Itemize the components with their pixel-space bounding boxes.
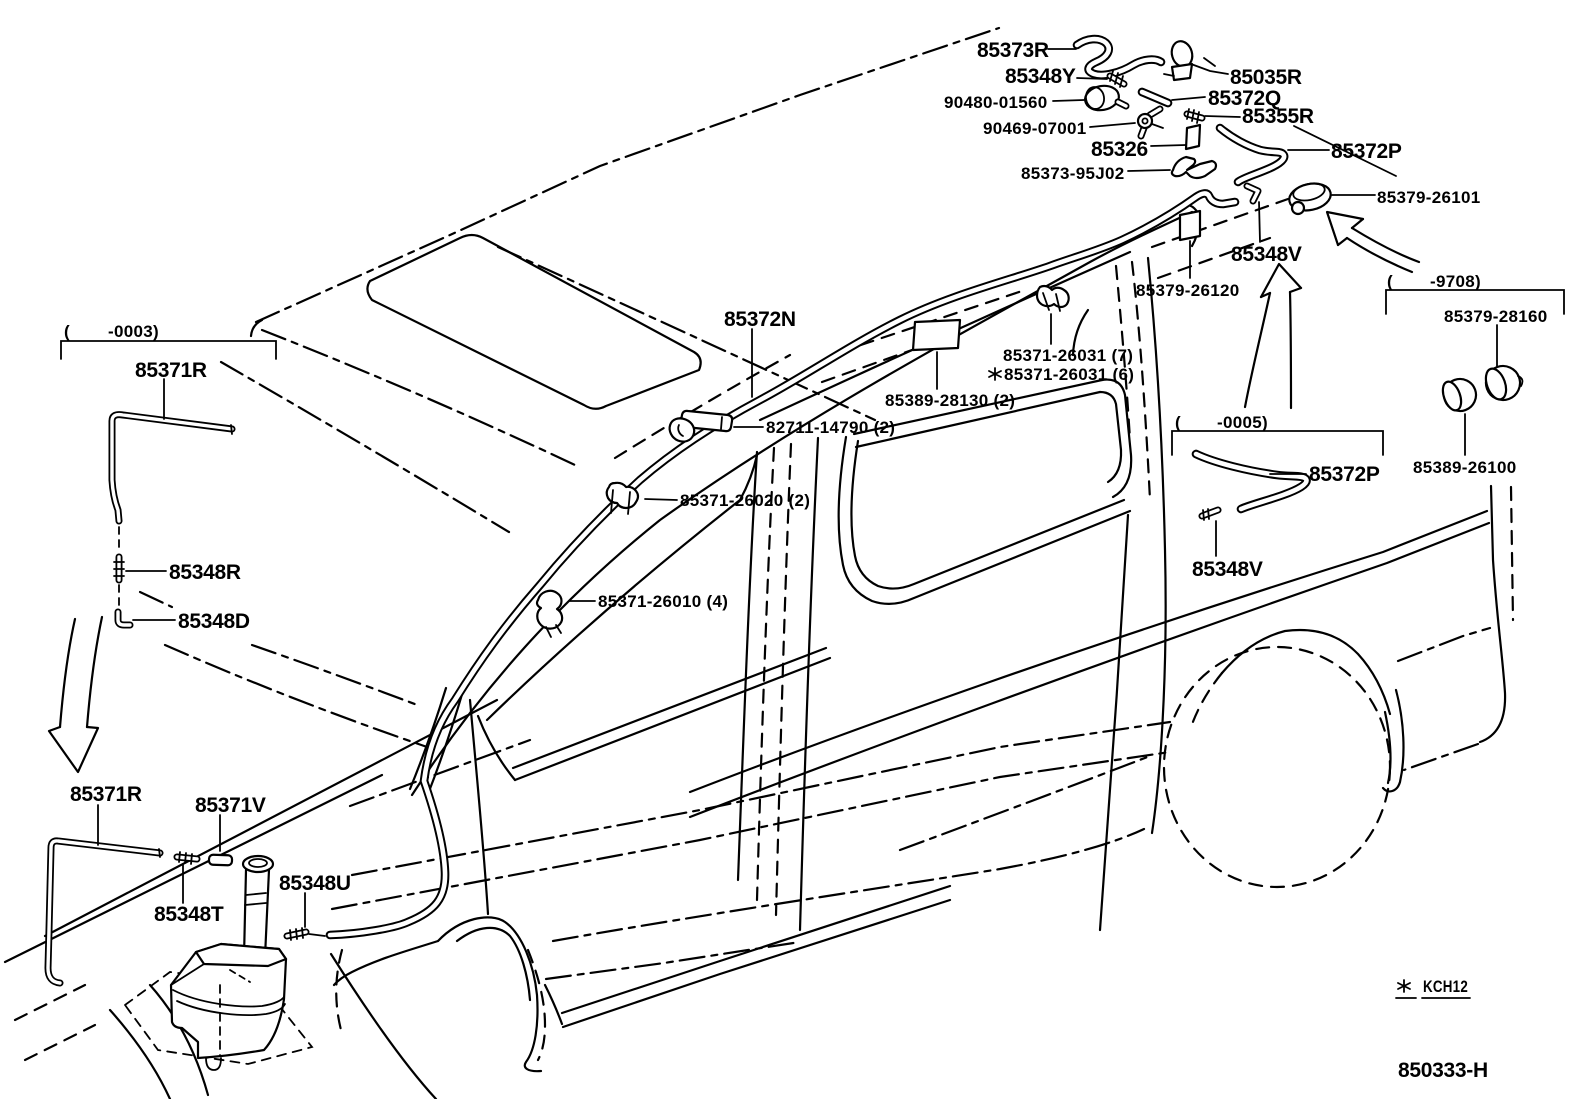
svg-text:85371-26020 (2): 85371-26020 (2) [680,491,810,510]
svg-text:85379-26120: 85379-26120 [1136,281,1240,300]
svg-text:85371V: 85371V [195,794,266,817]
svg-text:-9708): -9708) [1430,272,1481,291]
svg-text:-0003): -0003) [108,322,159,341]
svg-text:85389-28130 (2): 85389-28130 (2) [885,391,1015,410]
svg-text:85372P: 85372P [1331,140,1402,163]
svg-text:90469-07001: 90469-07001 [983,119,1087,138]
svg-text:85035R: 85035R [1230,66,1302,89]
svg-text:85348R: 85348R [169,561,241,584]
svg-text:-0005): -0005) [1217,413,1268,432]
svg-text:85371-26031 (6): 85371-26031 (6) [1004,365,1134,384]
svg-text:85371-26010 (4): 85371-26010 (4) [598,592,728,611]
svg-text:90480-01560: 90480-01560 [944,93,1048,112]
svg-text:85389-26100: 85389-26100 [1413,458,1517,477]
svg-text:85348V: 85348V [1192,558,1263,581]
svg-text:85348D: 85348D [178,610,250,633]
svg-text:85373-95J02: 85373-95J02 [1021,164,1125,183]
svg-text:85355R: 85355R [1242,105,1314,128]
svg-text:(: ( [1175,413,1181,432]
svg-text:85348V: 85348V [1231,243,1302,266]
svg-text:85371-26031 (7): 85371-26031 (7) [1003,346,1133,365]
svg-text:85379-26101: 85379-26101 [1377,188,1481,207]
svg-text:85371R: 85371R [135,359,207,382]
svg-text:85379-28160: 85379-28160 [1444,307,1548,326]
svg-text:850333-H: 850333-H [1398,1059,1488,1082]
svg-text:85348U: 85348U [279,872,351,895]
svg-text:82711-14790 (2): 82711-14790 (2) [766,418,895,437]
svg-text:85372P: 85372P [1309,463,1380,486]
svg-text:(: ( [64,322,70,341]
svg-text:85348Y: 85348Y [1005,65,1076,88]
svg-text:85348T: 85348T [154,903,224,926]
svg-text:85326: 85326 [1091,138,1148,161]
svg-text:85373R: 85373R [977,39,1049,62]
svg-text:(: ( [1387,272,1393,291]
svg-text:85372N: 85372N [724,308,796,331]
svg-text:KCH12: KCH12 [1423,977,1468,996]
svg-text:85371R: 85371R [70,783,142,806]
